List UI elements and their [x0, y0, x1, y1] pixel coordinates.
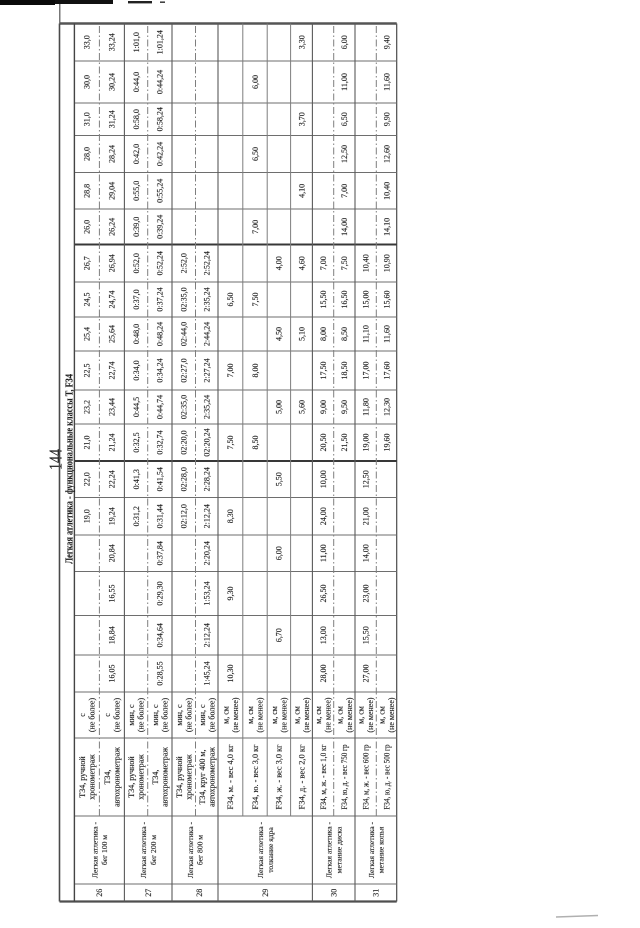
svg-text:Легкая атлетика -: Легкая атлетика -	[186, 821, 195, 878]
svg-text:26,94: 26,94	[108, 254, 117, 272]
svg-text:0:29,30: 0:29,30	[156, 581, 165, 605]
svg-text:5,60: 5,60	[297, 400, 306, 414]
svg-text:хронометраж: хронометраж	[88, 754, 97, 800]
svg-text:8,00: 8,00	[251, 364, 260, 378]
svg-text:02:35,0: 02:35,0	[180, 395, 189, 419]
svg-text:0:58,0: 0:58,0	[132, 109, 141, 129]
svg-text:метание диска: метание диска	[334, 826, 343, 873]
svg-text:2:52,24: 2:52,24	[203, 251, 212, 275]
svg-text:23,44: 23,44	[108, 398, 117, 416]
svg-text:F34, ю, д. - вес 500 гр: F34, ю, д. - вес 500 гр	[382, 745, 391, 810]
svg-text:23,2: 23,2	[83, 400, 92, 414]
svg-text:02:44,0: 02:44,0	[180, 322, 189, 346]
svg-text:5,10: 5,10	[297, 327, 306, 341]
svg-text:02:35,0: 02:35,0	[180, 287, 189, 311]
svg-text:0:58,24: 0:58,24	[156, 107, 165, 131]
svg-text:4,50: 4,50	[275, 327, 284, 341]
svg-text:14,00: 14,00	[361, 544, 370, 562]
svg-text:33,24: 33,24	[108, 33, 117, 51]
svg-text:14,00: 14,00	[340, 218, 349, 236]
svg-text:10,30: 10,30	[226, 665, 235, 683]
svg-text:19,0: 19,0	[83, 509, 92, 523]
svg-text:22,24: 22,24	[108, 470, 117, 488]
svg-text:28,00: 28,00	[319, 665, 328, 683]
svg-text:8,00: 8,00	[319, 327, 328, 341]
svg-text:Легкая атлетика -: Легкая атлетика -	[367, 821, 376, 878]
svg-text:(не более): (не более)	[113, 698, 122, 733]
svg-text:2:20,24: 2:20,24	[203, 541, 212, 565]
svg-text:8,50: 8,50	[340, 327, 349, 341]
svg-text:8,30: 8,30	[226, 509, 235, 523]
svg-text:28,24: 28,24	[108, 145, 117, 163]
svg-text:16,50: 16,50	[340, 291, 349, 309]
svg-text:7,00: 7,00	[340, 184, 349, 198]
svg-text:12,30: 12,30	[382, 398, 391, 416]
svg-text:19,60: 19,60	[382, 434, 391, 452]
svg-text:м, см: м, см	[357, 706, 366, 724]
svg-text:15,50: 15,50	[319, 291, 328, 309]
svg-text:6,00: 6,00	[275, 546, 284, 560]
svg-text:(не менее): (не менее)	[345, 697, 354, 732]
svg-text:м, см: м, см	[314, 706, 323, 724]
svg-text:18,84: 18,84	[108, 626, 117, 644]
svg-text:с: с	[103, 713, 112, 717]
svg-text:17,50: 17,50	[319, 362, 328, 380]
svg-text:м, см: м, см	[221, 706, 230, 724]
svg-text:29,04: 29,04	[108, 182, 117, 200]
svg-text:0:39,24: 0:39,24	[156, 215, 165, 239]
svg-text:1:01,24: 1:01,24	[156, 30, 165, 54]
svg-text:9,40: 9,40	[382, 35, 391, 49]
svg-text:13,00: 13,00	[319, 626, 328, 644]
svg-text:6,00: 6,00	[340, 35, 349, 49]
svg-text:Легкая атлетика -: Легкая атлетика -	[139, 821, 148, 878]
svg-text:21,00: 21,00	[361, 507, 370, 525]
svg-text:F34, ю. - вес 3,0 кг: F34, ю. - вес 3,0 кг	[251, 744, 260, 810]
svg-text:F34, м. - вес 4,0 кг: F34, м. - вес 4,0 кг	[226, 744, 235, 810]
svg-text:Т34,: Т34,	[151, 770, 160, 785]
svg-text:Т34, ручной: Т34, ручной	[78, 756, 87, 798]
svg-text:31: 31	[372, 889, 381, 897]
svg-text:толкание ядра: толкание ядра	[266, 827, 275, 873]
svg-text:2:35,24: 2:35,24	[203, 395, 212, 419]
svg-text:Легкая атлетика -: Легкая атлетика -	[325, 821, 334, 878]
svg-text:мин, с: мин, с	[175, 704, 184, 726]
svg-text:02:20,0: 02:20,0	[180, 430, 189, 454]
svg-text:02:27,0: 02:27,0	[180, 358, 189, 382]
svg-text:4,60: 4,60	[297, 256, 306, 270]
svg-text:30: 30	[330, 889, 339, 897]
svg-text:(не более): (не более)	[184, 698, 193, 733]
svg-text:0:52,24: 0:52,24	[156, 251, 165, 275]
svg-text:F34, ю, д. - вес 750 гр: F34, ю, д. - вес 750 гр	[340, 745, 349, 810]
svg-text:Т34,: Т34,	[103, 770, 112, 785]
svg-text:F34, м, ж. - вес 600 гр: F34, м, ж. - вес 600 гр	[361, 745, 370, 810]
svg-text:0:52,0: 0:52,0	[132, 253, 141, 273]
svg-text:0:48,0: 0:48,0	[132, 324, 141, 344]
svg-text:22,74: 22,74	[108, 362, 117, 380]
svg-text:Т34, круг 400 м,: Т34, круг 400 м,	[198, 749, 207, 804]
svg-text:0:31,44: 0:31,44	[156, 504, 165, 528]
svg-text:2:27,24: 2:27,24	[203, 358, 212, 382]
svg-text:14,10: 14,10	[382, 218, 391, 236]
svg-text:26,7: 26,7	[83, 256, 92, 270]
svg-text:21,0: 21,0	[83, 436, 92, 450]
svg-text:27: 27	[144, 889, 153, 897]
svg-text:0:55,24: 0:55,24	[156, 179, 165, 203]
svg-text:8,50: 8,50	[251, 436, 260, 450]
svg-text:автохронометраж: автохронометраж	[160, 747, 169, 807]
svg-text:6,00: 6,00	[251, 75, 260, 89]
svg-text:мин, с: мин, с	[127, 704, 136, 726]
svg-text:15,00: 15,00	[361, 291, 370, 309]
svg-text:7,00: 7,00	[251, 220, 260, 234]
svg-text:0:48,24: 0:48,24	[156, 322, 165, 346]
svg-text:0:32,74: 0:32,74	[156, 430, 165, 454]
svg-text:Т34, ручной: Т34, ручной	[175, 756, 184, 798]
svg-text:(не более): (не более)	[160, 698, 169, 733]
svg-text:18,50: 18,50	[340, 362, 349, 380]
svg-text:10,90: 10,90	[382, 254, 391, 272]
svg-text:6,70: 6,70	[275, 628, 284, 642]
svg-text:2:35,24: 2:35,24	[203, 287, 212, 311]
svg-text:мин, с: мин, с	[198, 704, 207, 726]
svg-text:7,50: 7,50	[226, 436, 235, 450]
svg-text:21,24: 21,24	[108, 434, 117, 452]
svg-text:2:12,24: 2:12,24	[203, 504, 212, 528]
svg-text:17,00: 17,00	[361, 362, 370, 380]
svg-text:1:01,0: 1:01,0	[132, 32, 141, 52]
svg-text:0:37,84: 0:37,84	[156, 541, 165, 565]
svg-text:0:42,0: 0:42,0	[132, 144, 141, 164]
svg-text:F34, м, ж. - вес 1,0 кг: F34, м, ж. - вес 1,0 кг	[319, 744, 328, 810]
svg-text:16,55: 16,55	[108, 585, 117, 603]
svg-text:26,0: 26,0	[83, 220, 92, 234]
svg-text:3,30: 3,30	[297, 35, 306, 49]
svg-text:9,30: 9,30	[226, 587, 235, 601]
svg-text:0:37,0: 0:37,0	[132, 289, 141, 309]
svg-text:(не менее): (не менее)	[302, 697, 311, 732]
svg-text:9,00: 9,00	[319, 400, 328, 414]
svg-text:17,60: 17,60	[382, 362, 391, 380]
svg-text:28: 28	[195, 889, 204, 897]
svg-text:11,80: 11,80	[361, 398, 370, 416]
svg-text:0:44,0: 0:44,0	[132, 72, 141, 92]
svg-text:7,00: 7,00	[226, 364, 235, 378]
svg-text:автохронометраж: автохронометраж	[113, 747, 122, 807]
svg-text:(не более): (не более)	[88, 698, 97, 733]
svg-text:10,00: 10,00	[319, 470, 328, 488]
svg-text:метание копья: метание копья	[377, 826, 386, 873]
svg-text:28,0: 28,0	[83, 147, 92, 161]
svg-text:автохронометраж: автохронометраж	[207, 747, 216, 807]
svg-text:12,50: 12,50	[340, 145, 349, 163]
svg-text:02:12,0: 02:12,0	[180, 504, 189, 528]
svg-text:30,24: 30,24	[108, 73, 117, 91]
svg-text:(не менее): (не менее)	[231, 697, 240, 732]
svg-text:10,40: 10,40	[361, 254, 370, 272]
svg-text:бег 200 м: бег 200 м	[149, 835, 158, 865]
svg-text:29: 29	[261, 889, 270, 897]
svg-text:2:44,24: 2:44,24	[203, 322, 212, 346]
svg-text:3,70: 3,70	[297, 112, 306, 126]
svg-text:с: с	[78, 713, 87, 717]
svg-text:(не менее): (не менее)	[280, 697, 289, 732]
svg-text:10,40: 10,40	[382, 182, 391, 200]
svg-text:31,0: 31,0	[83, 112, 92, 126]
svg-text:12,60: 12,60	[382, 145, 391, 163]
svg-text:22,5: 22,5	[83, 364, 92, 378]
svg-text:4,00: 4,00	[275, 256, 284, 270]
svg-text:16,05: 16,05	[108, 665, 117, 683]
svg-text:26: 26	[95, 889, 104, 897]
svg-text:5,50: 5,50	[275, 472, 284, 486]
svg-text:0:39,0: 0:39,0	[132, 217, 141, 237]
svg-text:0:32,5: 0:32,5	[132, 432, 141, 452]
svg-text:(не менее): (не менее)	[387, 697, 396, 732]
svg-text:22,0: 22,0	[83, 472, 92, 486]
svg-text:0:34,64: 0:34,64	[156, 623, 165, 647]
svg-text:(не более): (не более)	[207, 698, 216, 733]
svg-text:м, см: м, см	[378, 706, 387, 724]
svg-text:02:20,24: 02:20,24	[203, 428, 212, 456]
svg-text:4,10: 4,10	[297, 184, 306, 198]
svg-text:21,50: 21,50	[340, 434, 349, 452]
svg-text:бег 100 м: бег 100 м	[100, 835, 109, 865]
svg-text:11,00: 11,00	[319, 544, 328, 562]
svg-text:1:53,24: 1:53,24	[203, 581, 212, 605]
svg-text:1:45,24: 1:45,24	[203, 661, 212, 685]
svg-text:11,60: 11,60	[382, 325, 391, 343]
svg-text:бег 800 м: бег 800 м	[196, 835, 205, 865]
svg-text:24,5: 24,5	[83, 293, 92, 307]
svg-text:F34, ж. - вес 3,0 кг: F34, ж. - вес 3,0 кг	[275, 744, 284, 810]
svg-text:мин, с: мин, с	[151, 704, 160, 726]
svg-text:2:12,24: 2:12,24	[203, 623, 212, 647]
svg-text:Легкая атлетика -: Легкая атлетика -	[90, 821, 99, 878]
svg-text:7,50: 7,50	[340, 256, 349, 270]
svg-text:9,50: 9,50	[340, 400, 349, 414]
svg-text:Т34, ручной: Т34, ручной	[127, 756, 136, 798]
svg-text:23,00: 23,00	[361, 585, 370, 603]
svg-text:25,64: 25,64	[108, 325, 117, 343]
svg-text:0:42,24: 0:42,24	[156, 142, 165, 166]
svg-text:Легкая атлетика - функциональн: Легкая атлетика - функциональные классы …	[65, 374, 76, 564]
svg-text:6,50: 6,50	[340, 112, 349, 126]
svg-text:0:44,74: 0:44,74	[156, 395, 165, 419]
svg-text:02:28,0: 02:28,0	[180, 467, 189, 491]
svg-text:9,90: 9,90	[382, 112, 391, 126]
svg-text:27,00: 27,00	[361, 665, 370, 683]
svg-text:11,00: 11,00	[340, 73, 349, 91]
svg-text:0:34,24: 0:34,24	[156, 358, 165, 382]
svg-text:м, см: м, см	[270, 706, 279, 724]
svg-text:Легкая атлетика -: Легкая атлетика -	[256, 821, 265, 878]
svg-text:19,00: 19,00	[361, 434, 370, 452]
svg-text:хронометраж: хронометраж	[137, 754, 146, 800]
svg-text:0:31,2: 0:31,2	[132, 506, 141, 526]
svg-text:0:44,5: 0:44,5	[132, 397, 141, 417]
svg-text:(не менее): (не менее)	[324, 697, 333, 732]
svg-text:(не менее): (не менее)	[256, 697, 265, 732]
svg-text:6,50: 6,50	[226, 293, 235, 307]
svg-text:F34, д. - вес 2,0 кг: F34, д. - вес 2,0 кг	[297, 744, 306, 810]
svg-text:м, см: м, см	[293, 706, 302, 724]
svg-text:26,24: 26,24	[108, 218, 117, 236]
svg-text:28,8: 28,8	[83, 184, 92, 198]
svg-text:5,00: 5,00	[275, 400, 284, 414]
svg-text:м, см: м, см	[335, 706, 344, 724]
svg-text:15,50: 15,50	[361, 626, 370, 644]
svg-text:12,50: 12,50	[361, 470, 370, 488]
svg-text:6,50: 6,50	[251, 147, 260, 161]
svg-text:0:37,24: 0:37,24	[156, 287, 165, 311]
svg-text:144: 144	[46, 449, 66, 470]
svg-text:26,50: 26,50	[319, 585, 328, 603]
svg-text:24,74: 24,74	[108, 291, 117, 309]
svg-text:19,24: 19,24	[108, 507, 117, 525]
svg-text:20,50: 20,50	[319, 434, 328, 452]
svg-text:25,4: 25,4	[83, 327, 92, 341]
svg-text:0:44,24: 0:44,24	[156, 70, 165, 94]
svg-text:20,84: 20,84	[108, 544, 117, 562]
svg-text:(не более): (не более)	[137, 698, 146, 733]
svg-text:11,60: 11,60	[382, 73, 391, 91]
svg-text:0:41,3: 0:41,3	[132, 469, 141, 489]
svg-text:7,00: 7,00	[319, 256, 328, 270]
svg-text:0:41,54: 0:41,54	[156, 467, 165, 491]
svg-text:15,60: 15,60	[382, 291, 391, 309]
svg-text:0:28,55: 0:28,55	[156, 661, 165, 685]
svg-text:2:52,0: 2:52,0	[180, 253, 189, 273]
svg-text:11,10: 11,10	[361, 325, 370, 343]
svg-text:24,00: 24,00	[319, 507, 328, 525]
svg-text:30,0: 30,0	[83, 75, 92, 89]
svg-text:31,24: 31,24	[108, 110, 117, 128]
svg-text:0:55,0: 0:55,0	[132, 181, 141, 201]
svg-text:33,0: 33,0	[83, 35, 92, 49]
svg-text:2:28,24: 2:28,24	[203, 467, 212, 491]
svg-text:(не менее): (не менее)	[366, 697, 375, 732]
svg-text:хронометраж: хронометраж	[184, 754, 193, 800]
svg-text:7,50: 7,50	[251, 293, 260, 307]
svg-text:0:34,0: 0:34,0	[132, 360, 141, 380]
svg-text:м, см: м, см	[246, 706, 255, 724]
